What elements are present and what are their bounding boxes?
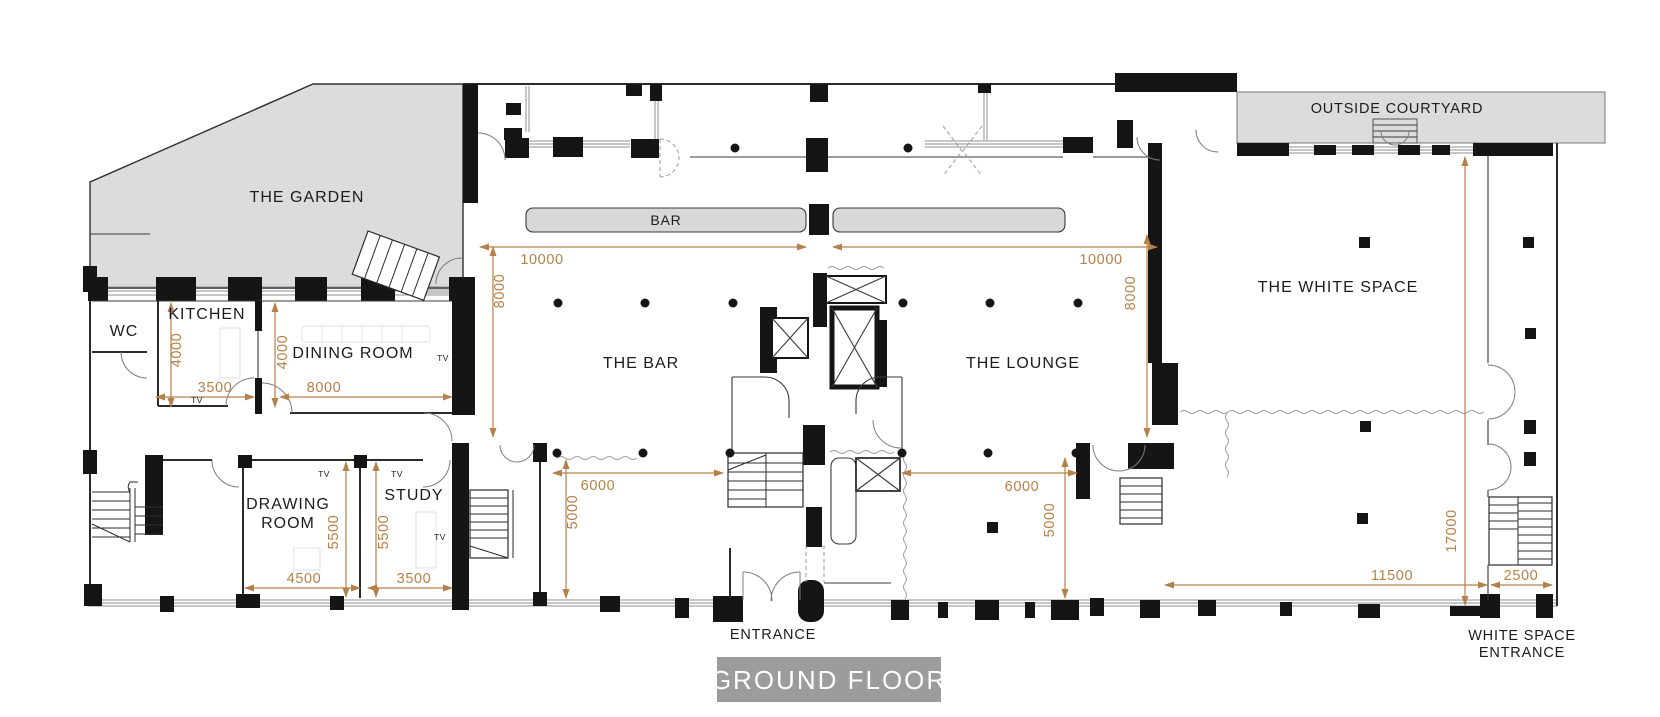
kitchen-label: KITCHEN (168, 306, 245, 323)
dim-lounge-lower-width-label: 6000 (1005, 479, 1040, 495)
dim-bar-width: 10000 (480, 247, 806, 268)
dim-study-height-label: 5500 (376, 515, 392, 550)
white-space-label: THE WHITE SPACE (1258, 279, 1419, 296)
dim-bar-lower-width-label: 6000 (581, 478, 616, 494)
bar-counter-right (833, 208, 1065, 232)
floor-plan-page: 10000 8000 10000 8000 4000 3500 4000 80 (0, 0, 1660, 717)
tv-label-study-side: TV (434, 532, 446, 542)
dim-white-space-height: 17000 (1444, 157, 1465, 605)
entrance-stair-icon (728, 453, 803, 507)
entrance-label: ENTRANCE (730, 627, 816, 643)
tv-label-dining: TV (437, 353, 449, 363)
bar-counter-label: BAR (650, 212, 681, 228)
courtyard-label: OUTSIDE COURTYARD (1311, 101, 1484, 117)
dim-drawing-height-label: 5500 (326, 515, 342, 550)
drawing-room-label-line2: ROOM (261, 515, 315, 532)
dim-drawing-height: 5500 (326, 462, 346, 597)
dim-lounge-lower-width: 6000 (902, 473, 1077, 495)
dim-lounge-lower-height: 5000 (1042, 458, 1065, 598)
drawing-room-label-line1: DRAWING (246, 496, 330, 513)
tv-label-kitchen: TV (191, 395, 203, 405)
dim-study-width: 3500 (368, 571, 452, 588)
dim-white-space-width: 11500 (1165, 568, 1487, 585)
dim-dining-width: 8000 (280, 380, 452, 397)
dim-lounge-height: 8000 (1123, 235, 1147, 437)
floor-badge: GROUND FLOOR (711, 657, 947, 702)
curtain-lines (557, 267, 1484, 600)
dim-ws-entry-width: 2500 (1491, 568, 1552, 585)
dim-bar-width-label: 10000 (520, 252, 563, 268)
dim-bar-height: 8000 (492, 247, 508, 437)
ws-entrance-label-line1: WHITE SPACE (1468, 628, 1576, 644)
dim-bar-lower-height-label: 5000 (565, 495, 581, 530)
dim-bar-lower-height: 5000 (565, 460, 581, 598)
ws-entrance-stair-icon (1489, 497, 1552, 565)
lounge-label: THE LOUNGE (966, 355, 1080, 372)
ws-entrance-label-line2: ENTRANCE (1479, 645, 1565, 661)
bar-counters (526, 204, 1065, 235)
lounge-stair-icon (1120, 478, 1162, 524)
dim-white-space-height-label: 17000 (1444, 509, 1460, 552)
dim-lounge-lower-height-label: 5000 (1042, 503, 1058, 538)
bar-room-label: THE BAR (603, 355, 679, 372)
vestibule-shaft-icon (856, 458, 900, 491)
dining-label: DINING ROOM (292, 345, 413, 362)
wc-label: WC (110, 323, 139, 340)
dim-study-height: 5500 (376, 462, 392, 597)
central-stair-icon (470, 490, 513, 558)
tv-label-study-top: TV (391, 469, 403, 479)
dim-drawing-width-label: 4500 (287, 571, 322, 587)
dim-kitchen-width-label: 3500 (198, 380, 233, 396)
courtyard-steps-icon (1373, 119, 1417, 145)
courtyard-area (1237, 92, 1605, 143)
dim-drawing-width: 4500 (245, 571, 360, 588)
shaft-icon-top (826, 276, 886, 303)
shaft-icon-small (772, 318, 808, 358)
floor-badge-label: GROUND FLOOR (711, 665, 947, 695)
counter-pillar (809, 204, 829, 235)
dim-lounge-height-label: 8000 (1123, 276, 1139, 311)
columns (553, 144, 1537, 534)
dim-white-space-width-label: 11500 (1371, 568, 1413, 584)
garden-label: THE GARDEN (250, 189, 365, 206)
dim-dining-height-label: 4000 (275, 335, 291, 370)
dim-bar-lower-width: 6000 (553, 473, 723, 494)
dim-bar-height-label: 8000 (492, 274, 508, 309)
lift-shaft-icon (832, 308, 877, 387)
dim-dining-width-label: 8000 (307, 380, 342, 396)
tv-label-drawing: TV (318, 469, 330, 479)
central-core (730, 273, 902, 598)
dim-ws-entry-width-label: 2500 (1504, 568, 1539, 584)
floor-plan-canvas: 10000 8000 10000 8000 4000 3500 4000 80 (0, 0, 1660, 717)
dim-lounge-width-label: 10000 (1079, 252, 1122, 268)
dim-kitchen-height-label: 4000 (169, 333, 185, 368)
dim-study-width-label: 3500 (397, 571, 432, 587)
study-label: STUDY (384, 487, 443, 504)
dim-lounge-width: 10000 (833, 247, 1157, 268)
